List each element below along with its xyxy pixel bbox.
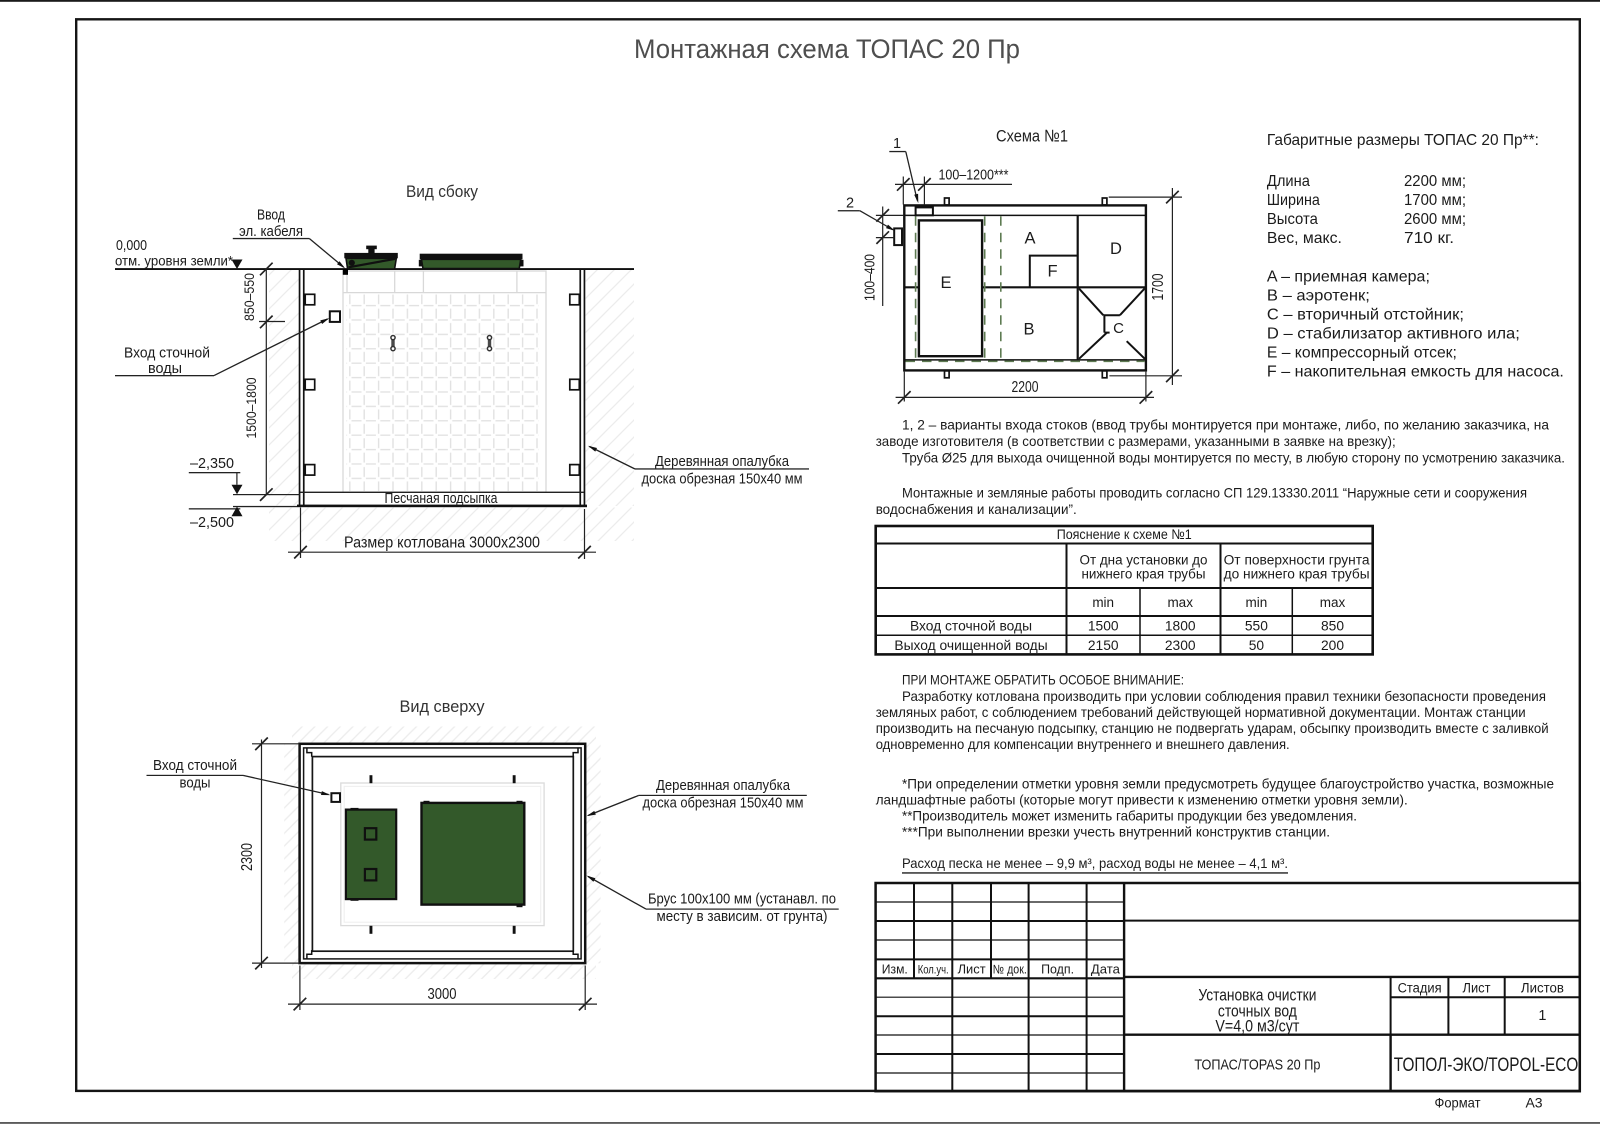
svg-text:850–550: 850–550 [241, 273, 257, 321]
svg-text:B: B [1023, 321, 1034, 339]
svg-text:550: 550 [1245, 619, 1268, 634]
svg-text:доска обрезная 150х40 мм: доска обрезная 150х40 мм [642, 471, 803, 488]
svg-text:Деревянная опалубка: Деревянная опалубка [655, 453, 790, 470]
svg-text:B – аэротенк;: B – аэротенк; [1267, 288, 1370, 305]
svg-text:Деревянная опалубка: Деревянная опалубка [656, 777, 791, 794]
svg-text:E: E [940, 274, 951, 292]
svg-text:1: 1 [893, 136, 901, 152]
svg-text:2300: 2300 [1165, 638, 1196, 653]
svg-text:A: A [1024, 230, 1035, 248]
svg-text:От дна установки до: От дна установки до [1080, 553, 1208, 568]
svg-text:200: 200 [1321, 638, 1344, 653]
svg-text:C – вторичный отстойник;: C – вторичный отстойник; [1267, 307, 1464, 324]
svg-text:Стадия: Стадия [1398, 980, 1442, 995]
svg-text:Вход сточной: Вход сточной [124, 346, 210, 362]
svg-text:F: F [1047, 263, 1057, 281]
svg-text:100–1200***: 100–1200*** [939, 168, 1009, 184]
svg-text:min: min [1092, 595, 1114, 610]
svg-text:850: 850 [1321, 619, 1344, 634]
svg-text:F – накопительная емкость для: F – накопительная емкость для насоса. [1267, 364, 1564, 381]
svg-text:Лист: Лист [958, 961, 986, 976]
svg-text:D – стабилизатор активного ила: D – стабилизатор активного ила; [1267, 326, 1520, 343]
svg-text:710 кг.: 710 кг. [1404, 230, 1454, 247]
svg-text:1700 мм;: 1700 мм; [1404, 192, 1466, 209]
svg-text:заводе изготовителя (в соответ: заводе изготовителя (в соответствии с ра… [876, 434, 1396, 449]
svg-text:ПРИ МОНТАЖЕ ОБРАТИТЬ ОСОБОЕ ВН: ПРИ МОНТАЖЕ ОБРАТИТЬ ОСОБОЕ ВНИМАНИЕ: [902, 673, 1184, 688]
svg-text:E – компрессорный отсек;: E – компрессорный отсек; [1267, 345, 1457, 362]
svg-text:1700: 1700 [1150, 273, 1167, 300]
svg-text:Размер котлована 3000х2300: Размер котлована 3000х2300 [344, 535, 540, 552]
svg-text:От поверхности грунта: От поверхности грунта [1224, 553, 1370, 568]
svg-text:Схема №1: Схема №1 [996, 127, 1068, 146]
svg-text:A – приемная камера;: A – приемная камера; [1267, 269, 1430, 286]
svg-text:Формат: Формат [1435, 1095, 1482, 1111]
svg-text:1: 1 [1538, 1008, 1546, 1024]
svg-text:2: 2 [846, 196, 854, 212]
svg-text:V=4,0 м3/сут: V=4,0 м3/сут [1215, 1017, 1299, 1036]
svg-text:Ввод: Ввод [257, 208, 285, 224]
svg-text:Монтажная схема ТОПАС 20 Пр: Монтажная схема ТОПАС 20 Пр [634, 34, 1020, 64]
svg-text:D: D [1110, 240, 1122, 258]
svg-text:3000: 3000 [428, 986, 457, 1003]
svg-text:100–400: 100–400 [863, 254, 879, 301]
svg-text:1500–1800: 1500–1800 [243, 377, 259, 438]
svg-text:отм. уровня земли*: отм. уровня земли* [115, 253, 234, 269]
svg-text:C: C [1113, 320, 1124, 337]
svg-text:Пояснение к схеме №1: Пояснение к схеме №1 [1057, 526, 1192, 542]
svg-text:А3: А3 [1525, 1095, 1542, 1111]
svg-text:№ док.: № док. [993, 962, 1027, 976]
svg-text:*При определении отметки уровн: *При определении отметки уровня земли пр… [902, 777, 1554, 792]
svg-text:ТОПАС/TOPAS 20 Пр: ТОПАС/TOPAS 20 Пр [1194, 1057, 1320, 1074]
svg-text:max: max [1167, 595, 1193, 610]
svg-text:производить на песчаную подсып: производить на песчаную подсыпку, станци… [876, 721, 1549, 736]
svg-text:2200 мм;: 2200 мм; [1404, 173, 1466, 190]
svg-text:Высота: Высота [1267, 211, 1318, 228]
svg-text:Расход песка не менее – 9,9 м³: Расход песка не менее – 9,9 м³, расход в… [902, 856, 1288, 871]
svg-text:min: min [1246, 595, 1268, 610]
svg-text:Разработку котлована производи: Разработку котлована производить при усл… [902, 689, 1546, 704]
svg-text:2150: 2150 [1088, 638, 1119, 653]
svg-text:Песчаная подсыпка: Песчаная подсыпка [385, 491, 499, 507]
svg-text:**Производитель может изменить: **Производитель может изменить габариты … [902, 809, 1357, 824]
svg-text:Габаритные размеры ТОПАС 20 Пр: Габаритные размеры ТОПАС 20 Пр**: [1267, 132, 1539, 149]
svg-text:Листов: Листов [1521, 980, 1564, 995]
svg-text:воды: воды [180, 776, 211, 792]
svg-text:воды: воды [148, 361, 182, 377]
svg-text:до нижнего края трубы: до нижнего края трубы [1224, 567, 1370, 582]
svg-text:ТОПОЛ-ЭКО/TOPOL-ECO: ТОПОЛ-ЭКО/TOPOL-ECO [1394, 1055, 1579, 1076]
svg-text:Вид сверху: Вид сверху [400, 697, 485, 716]
svg-text:Лист: Лист [1463, 980, 1491, 995]
svg-text:одновременно для компенсации в: одновременно для компенсации внутреннего… [876, 737, 1290, 752]
svg-text:Ширина: Ширина [1267, 192, 1320, 209]
svg-text:–2,500: –2,500 [190, 514, 234, 531]
svg-text:Дата: Дата [1091, 961, 1121, 976]
svg-text:–2,350: –2,350 [190, 455, 234, 472]
svg-text:Труба Ø25 для выхода очищенной: Труба Ø25 для выхода очищенной воды монт… [902, 451, 1565, 466]
svg-text:нижнего края трубы: нижнего края трубы [1082, 567, 1206, 582]
svg-text:Длина: Длина [1267, 173, 1310, 190]
svg-text:Подп.: Подп. [1041, 961, 1074, 976]
svg-text:Брус 100х100 мм (устанавл. по: Брус 100х100 мм (устанавл. по [648, 891, 836, 908]
svg-text:Монтажные и земляные работы пр: Монтажные и земляные работы проводить со… [902, 486, 1527, 501]
svg-text:1800: 1800 [1165, 619, 1196, 634]
svg-text:1, 2 – варианты входа стоков: 1, 2 – варианты входа стоков (ввод трубы… [902, 418, 1549, 433]
svg-text:ландшафтные работы (которые мо: ландшафтные работы (которые могут привес… [876, 793, 1408, 808]
svg-text:Вход сточной: Вход сточной [153, 758, 237, 774]
svg-text:Вес, макс.: Вес, макс. [1267, 230, 1342, 247]
svg-text:2200: 2200 [1012, 379, 1039, 396]
svg-text:месту в зависим. от грунта): месту в зависим. от грунта) [657, 908, 828, 925]
svg-text:1500: 1500 [1088, 619, 1119, 634]
svg-text:max: max [1320, 595, 1346, 610]
svg-text:2600 мм;: 2600 мм; [1404, 211, 1466, 228]
svg-text:2300: 2300 [239, 843, 256, 871]
svg-text:Кол.уч.: Кол.уч. [918, 964, 949, 976]
svg-text:Вид сбоку: Вид сбоку [406, 182, 478, 201]
svg-text:0,000: 0,000 [116, 237, 147, 254]
svg-text:эл. кабеля: эл. кабеля [239, 224, 303, 240]
svg-text:***При выполнении врезки учест: ***При выполнении врезки учесть внутренн… [902, 825, 1330, 840]
svg-text:водоснабжения и канализации”.: водоснабжения и канализации”. [876, 502, 1077, 517]
svg-text:Вход сточной воды: Вход сточной воды [910, 619, 1032, 634]
svg-text:Выход очищенной воды: Выход очищенной воды [894, 638, 1047, 653]
svg-text:Изм.: Изм. [882, 961, 908, 976]
svg-text:доска обрезная 150х40 мм: доска обрезная 150х40 мм [643, 795, 804, 812]
svg-text:50: 50 [1249, 638, 1265, 653]
svg-text:земляных работ, с соблюдением: земляных работ, с соблюдением требований… [876, 705, 1526, 720]
